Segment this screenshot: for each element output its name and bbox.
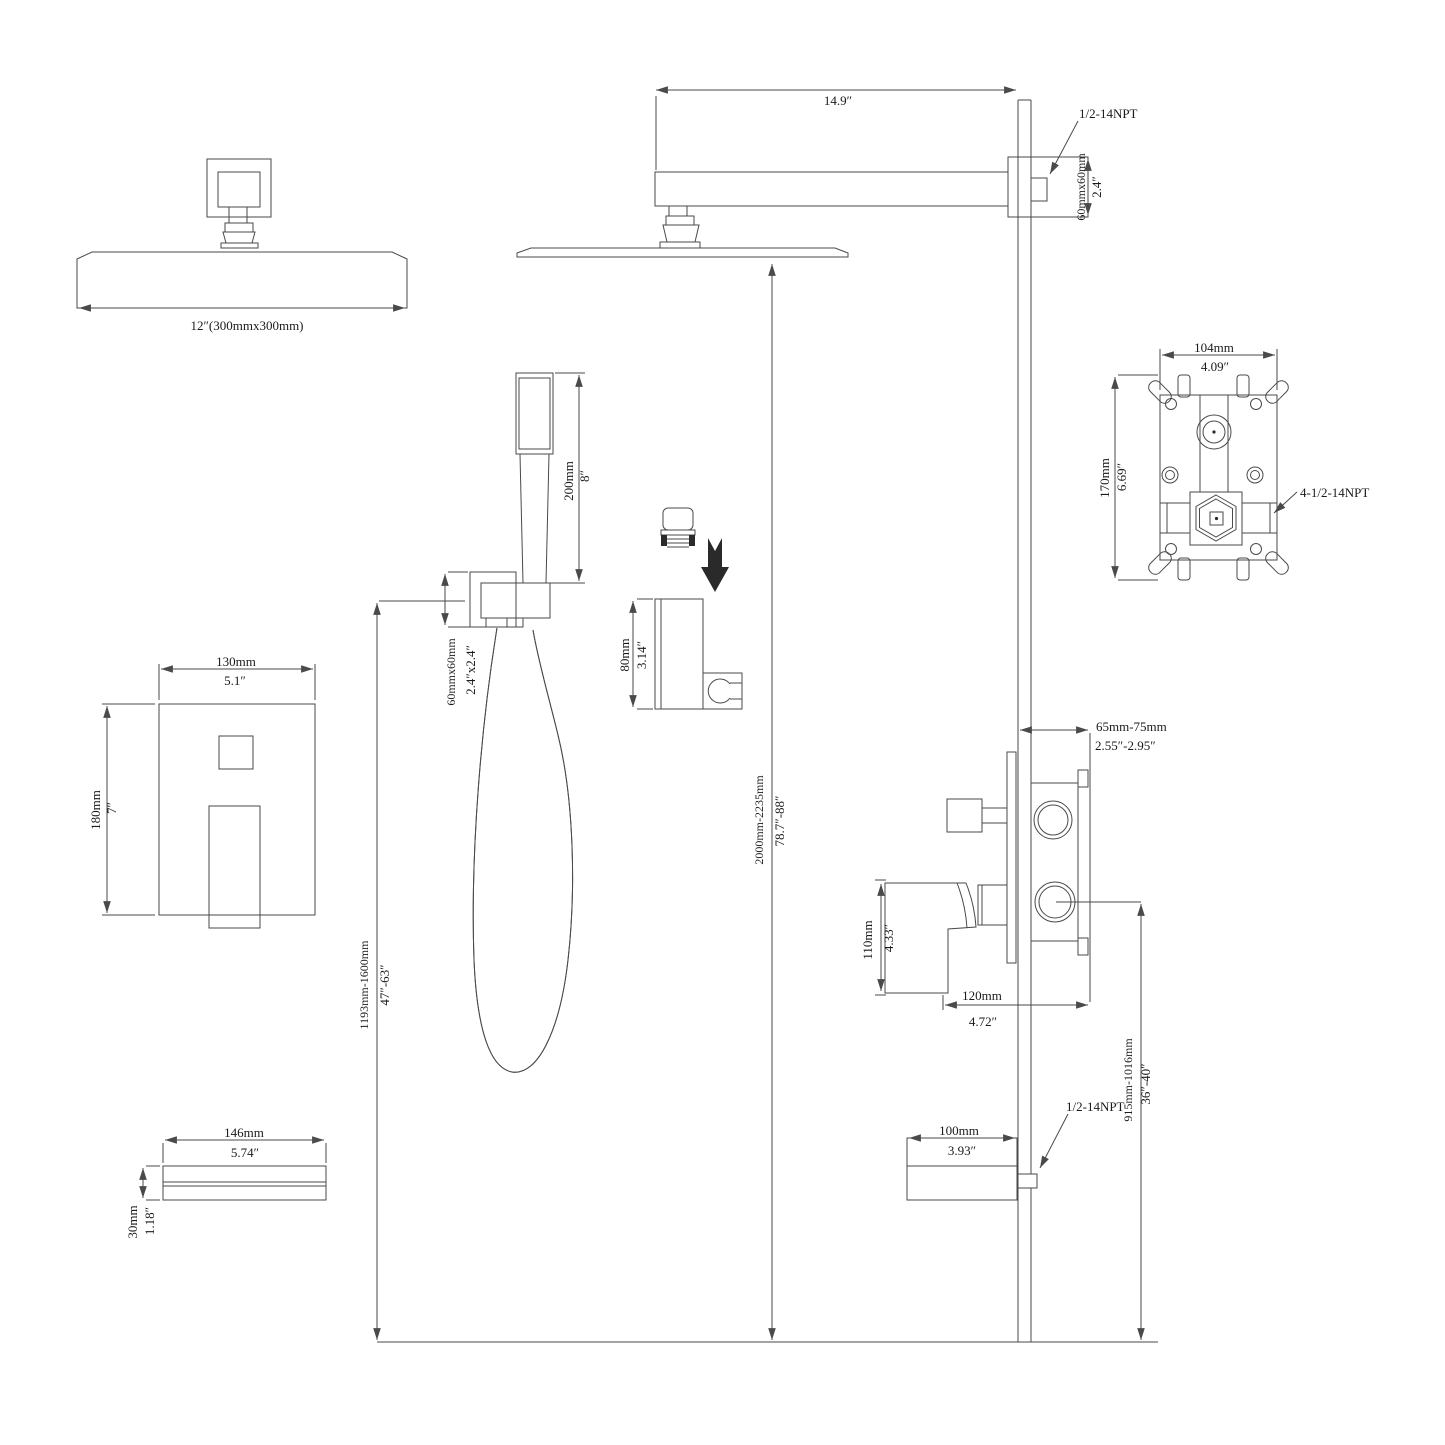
drawing-canvas: 12″(300mmx300mm) 14.9″ 1/2-14NPT 60mmx60… [0,0,1445,1445]
arm-box-in-label: 2.4″ [1089,176,1104,198]
hose-nut [486,618,523,627]
tub-spout-side-view [907,1114,1068,1200]
hand-shower-nozzles [521,381,548,447]
handle-length-mm-label: 120mm [962,988,1002,1003]
screw-hole [1166,399,1177,410]
mount-stem [229,207,247,223]
rain-shower-front-view [77,159,407,308]
diverter-button [219,736,253,769]
arm-nut [666,216,694,225]
top-port-center [1212,430,1215,433]
shower-hose-outer [473,628,572,1072]
dimension-labels: 12″(300mmx300mm) 14.9″ 1/2-14NPT 60mmx60… [88,93,1369,1239]
holder-clip-block [703,673,742,709]
shower-hose-inner [473,628,572,1072]
valve-port-top-outer [1034,801,1072,839]
screw-hole [1251,399,1262,410]
diverter-knob [947,799,982,832]
valve-width-in-label: 4.09″ [1201,359,1229,374]
shower-system-dimension-drawing: 12″(300mmx300mm) 14.9″ 1/2-14NPT 60mmx60… [0,0,1445,1445]
spout-reach-mm-label: 100mm [939,1123,979,1138]
spout-length-in-label: 5.74″ [231,1145,259,1160]
valve-height-in-label: 6.69″ [1114,463,1129,491]
cartridge-center [1215,517,1218,520]
tab-top-left [1178,375,1190,397]
arm-drop [669,206,687,216]
tab-top-right [1237,375,1249,397]
rough-in-valve-box [1115,349,1297,580]
trim-plate-front-view [102,664,315,928]
valve-depth-mm-label: 65mm-75mm [1096,719,1167,734]
arm-head-flange [660,242,700,248]
lever-handle [209,806,260,928]
leader-spout-npt [1040,1114,1068,1168]
rain-head-size-label: 12″(300mmx300mm) [190,318,303,333]
wall-outlet-escutcheon [470,572,516,627]
hand-shower-length-mm-label: 200mm [561,461,576,501]
arm-box-mm-label: 60mmx60mm [1074,153,1088,221]
outlet-size-mm-label: 60mmx60mm [444,638,458,706]
diverter-knob-stem [982,808,1007,823]
mount-base-inner [218,172,260,207]
hose-connector-body [663,508,693,530]
arm-length-label: 14.9″ [824,93,852,108]
wall-section [1018,100,1031,1342]
plate-width-in-label: 5.1″ [224,673,246,688]
spout-height-mm-label: 30mm [125,1205,140,1238]
holder-height-in-label: 3.14″ [634,641,649,669]
holder-bracket-detail [633,508,742,709]
right-port [1242,503,1277,533]
handle-height-mm-label: 110mm [860,920,875,959]
handle-length-in-label: 4.72″ [969,1014,997,1029]
floor-section [377,1342,1158,1362]
valve-to-floor-in-label: 36″-40″ [1138,1063,1153,1104]
wall-hatching [1018,100,1031,1342]
insert-direction-arrow-icon [701,538,729,592]
hose-connector-collar [661,530,695,535]
holder-height-mm-label: 80mm [617,638,632,671]
plate-height-in-label: 7″ [104,802,119,814]
mounting-ear-bottom-right [1263,549,1291,577]
valve-width-mm-label: 104mm [1194,340,1234,355]
hand-shower-handle [520,454,549,583]
screw-hole [1251,544,1262,555]
floor-hatching [783,1343,1155,1362]
valve-tab-bottom [1078,938,1088,955]
rain-shower-side-view [517,90,1088,263]
side-hole-inner [1166,471,1175,480]
rain-head-plate-side [517,248,848,257]
rain-head-plate [77,252,407,308]
nozzle-row [89,253,396,260]
plate-height-mm-label: 180mm [88,790,103,830]
mount-base-outer [207,159,271,217]
valve-trim-side-view [875,730,1141,1340]
trim-plate-edge [1007,752,1016,963]
arm-npt-label: 1/2-14NPT [1079,106,1138,121]
shower-arm [655,172,1008,206]
tab-bottom-left [1178,558,1190,580]
spout-length-mm-label: 146mm [224,1125,264,1140]
hand-shower-face [519,378,550,449]
valve-body-behind-wall [1031,783,1078,941]
arm-npt-nipple [1031,178,1047,201]
valve-npt-label: 4-1/2-14NPT [1300,485,1369,500]
outlet-to-floor-in-label: 47″-63″ [377,964,392,1005]
arm-swivel-ball [663,225,699,242]
spout-npt-label: 1/2-14NPT [1066,1099,1125,1114]
swivel-ball [223,232,255,243]
valve-tab-top [1078,770,1088,787]
tab-bottom-right [1237,558,1249,580]
valve-port-top-inner [1038,805,1068,835]
handle-height-in-label: 4.33″ [881,924,896,952]
holder-clip-c-shape [708,679,730,703]
side-hole-inner [1251,471,1260,480]
valve-depth-in-label: 2.55″-2.95″ [1095,738,1156,753]
side-hole-outer [1162,467,1178,483]
lever-neck-curve [957,883,967,928]
screw-hole [1166,544,1177,555]
swivel-nut [225,223,253,232]
valve-height-mm-label: 170mm [1097,458,1112,498]
overall-height-dimensions [377,264,772,1340]
nozzle-row-side [524,257,840,263]
connector-seal-left [661,535,667,546]
hand-shower-length-in-label: 8″ [577,470,592,482]
connector-seal-right [689,535,695,546]
head-to-floor-in-label: 78.7″-88″ [772,796,787,847]
spout-npt-nipple [1018,1174,1037,1188]
hand-shower-head [516,373,553,454]
spout-reach-in-label: 3.93″ [948,1143,976,1158]
spout-height-in-label: 1.18″ [142,1207,157,1235]
holder-bracket-body [655,599,703,709]
outlet-size-in-label: 2.4″x2.4″ [463,645,478,695]
plate-width-mm-label: 130mm [216,654,256,669]
mounting-ear-bottom-left [1146,549,1174,577]
left-port [1160,503,1190,533]
side-hole-outer [1247,467,1263,483]
head-to-floor-mm-label: 2000mm-2235mm [752,775,766,865]
head-flange [221,243,258,248]
outlet-to-floor-mm-label: 1193mm-1600mm [357,940,371,1030]
tub-spout-front-body [163,1166,326,1200]
